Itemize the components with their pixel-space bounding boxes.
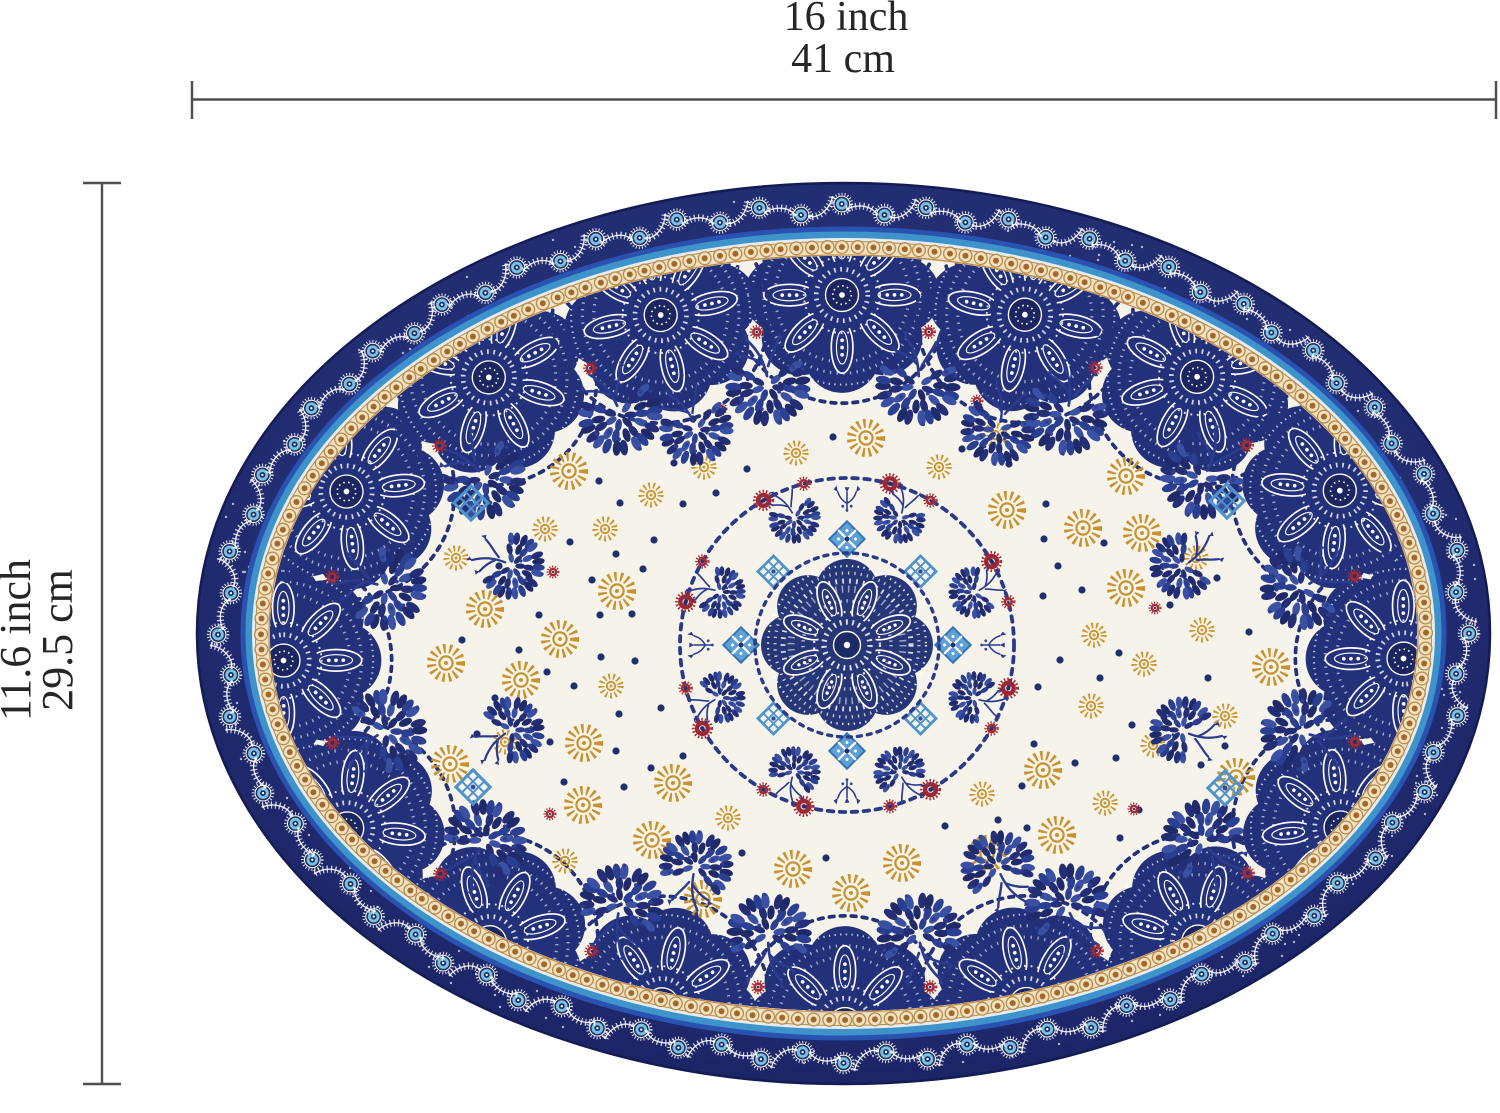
svg-text:29.5 cm: 29.5 cm — [33, 569, 82, 711]
svg-text:41 cm: 41 cm — [791, 36, 895, 82]
svg-text:16 inch: 16 inch — [784, 0, 909, 40]
